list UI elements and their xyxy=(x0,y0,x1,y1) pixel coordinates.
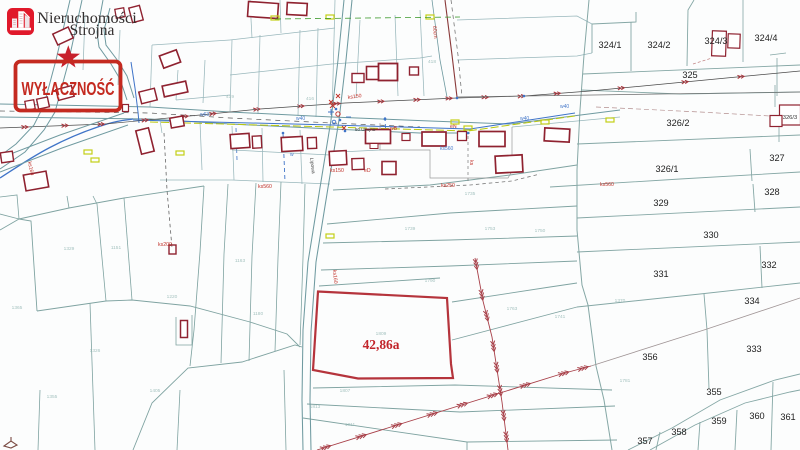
svg-text:wB: wB xyxy=(390,126,398,132)
svg-text:329: 329 xyxy=(653,198,668,208)
svg-text:eD: eD xyxy=(364,168,371,174)
svg-text:w63: w63 xyxy=(200,112,209,118)
svg-text:42,86a: 42,86a xyxy=(363,337,400,352)
svg-text:355: 355 xyxy=(706,387,721,397)
svg-text:eN: eN xyxy=(450,124,457,130)
svg-text:1151: 1151 xyxy=(111,245,122,251)
svg-text:1813: 1813 xyxy=(310,404,321,410)
svg-text:1735: 1735 xyxy=(465,191,476,197)
svg-text:ks150: ks150 xyxy=(330,168,344,174)
svg-text:358: 358 xyxy=(671,427,686,437)
svg-text:50 Ukojna: 50 Ukojna xyxy=(355,127,376,132)
svg-text:Strojna: Strojna xyxy=(70,22,115,39)
svg-text:1326: 1326 xyxy=(90,348,101,354)
svg-text:ks560: ks560 xyxy=(600,182,614,188)
svg-text:416: 416 xyxy=(306,96,314,102)
svg-text:333: 333 xyxy=(746,344,761,354)
svg-text:418: 418 xyxy=(428,59,436,65)
svg-text:w40: w40 xyxy=(296,116,305,122)
svg-text:1807: 1807 xyxy=(340,388,351,394)
svg-text:1370: 1370 xyxy=(615,298,626,304)
svg-text:356: 356 xyxy=(642,352,657,362)
svg-text:324/4: 324/4 xyxy=(755,33,778,43)
svg-text:ks200: ks200 xyxy=(158,242,172,248)
svg-text:1405: 1405 xyxy=(150,388,161,394)
svg-text:1163: 1163 xyxy=(235,258,246,264)
svg-text:1355: 1355 xyxy=(47,394,58,400)
svg-text:360: 360 xyxy=(749,411,764,421)
svg-text:334: 334 xyxy=(744,296,759,306)
svg-text:1781: 1781 xyxy=(620,378,631,384)
svg-text:324/1: 324/1 xyxy=(599,40,622,50)
svg-text:1753: 1753 xyxy=(485,226,496,232)
svg-text:ks560: ks560 xyxy=(440,146,454,152)
svg-text:326/3: 326/3 xyxy=(783,115,798,121)
svg-text:331: 331 xyxy=(653,269,668,279)
svg-text:WYŁĄCZNOŚĆ: WYŁĄCZNOŚĆ xyxy=(22,78,115,99)
svg-text:1741: 1741 xyxy=(555,314,566,320)
svg-text:w40: w40 xyxy=(520,116,529,122)
svg-text:1790: 1790 xyxy=(425,278,436,284)
svg-text:328: 328 xyxy=(764,187,779,197)
svg-text:ks160: ks160 xyxy=(331,270,338,284)
svg-text:1180: 1180 xyxy=(253,311,264,317)
svg-text:324/3: 324/3 xyxy=(705,36,728,46)
svg-text:1329: 1329 xyxy=(64,246,75,252)
svg-text:326/1: 326/1 xyxy=(656,164,679,174)
svg-text:361: 361 xyxy=(780,412,795,422)
svg-text:60cm: 60cm xyxy=(431,26,438,39)
svg-text:326/2: 326/2 xyxy=(667,118,690,128)
svg-text:332: 332 xyxy=(761,260,776,270)
svg-text:w40: w40 xyxy=(560,104,569,110)
svg-text:1763: 1763 xyxy=(507,306,518,312)
svg-text:ks: ks xyxy=(468,160,474,166)
svg-text:1750: 1750 xyxy=(535,228,546,234)
svg-text:330: 330 xyxy=(703,230,718,240)
svg-text:357: 357 xyxy=(637,436,652,446)
svg-text:ks560: ks560 xyxy=(258,184,272,190)
svg-text:ks250: ks250 xyxy=(441,183,455,189)
svg-text:1365: 1365 xyxy=(12,305,23,311)
svg-text:419: 419 xyxy=(226,94,234,100)
svg-text:325: 325 xyxy=(682,70,697,80)
svg-text:1811: 1811 xyxy=(345,422,356,428)
svg-text:1220: 1220 xyxy=(167,294,178,300)
svg-text:359: 359 xyxy=(711,416,726,426)
svg-text:327: 327 xyxy=(769,153,784,163)
svg-text:324/2: 324/2 xyxy=(648,40,671,50)
svg-text:w: w xyxy=(290,152,294,158)
svg-text:1739: 1739 xyxy=(405,226,416,232)
